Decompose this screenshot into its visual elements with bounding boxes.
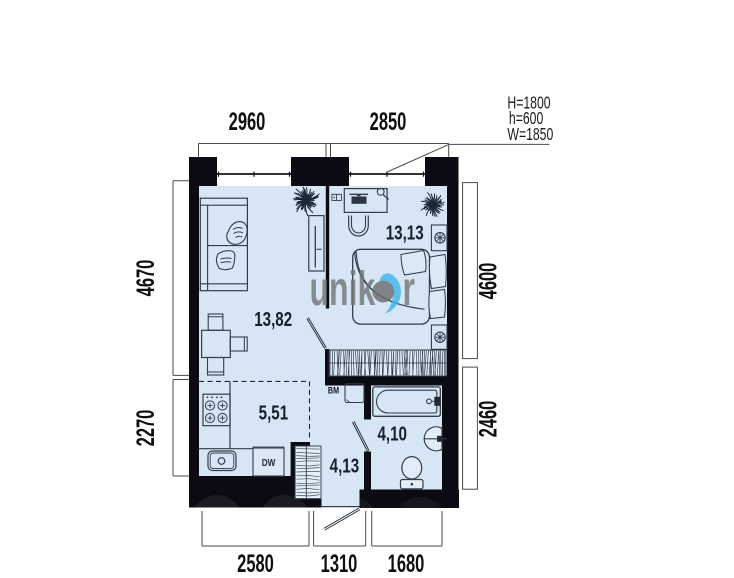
svg-text:4600: 4600: [475, 263, 502, 300]
svg-text:unik: unik: [310, 261, 376, 315]
svg-text:2580: 2580: [237, 551, 274, 578]
svg-text:2460: 2460: [475, 401, 502, 438]
svg-text:2960: 2960: [229, 109, 266, 136]
svg-text:r: r: [403, 261, 415, 315]
svg-text:ВМ: ВМ: [328, 386, 339, 396]
svg-text:2850: 2850: [370, 109, 407, 136]
svg-text:2270: 2270: [133, 410, 160, 447]
svg-text:4670: 4670: [133, 260, 160, 297]
svg-text:4,13: 4,13: [330, 454, 360, 477]
svg-text:13,13: 13,13: [386, 221, 424, 244]
svg-text:1680: 1680: [388, 551, 425, 578]
svg-text:4,10: 4,10: [377, 422, 407, 445]
svg-text:13,82: 13,82: [254, 308, 292, 331]
svg-text:1310: 1310: [321, 551, 358, 578]
svg-text:W=1850: W=1850: [507, 125, 553, 145]
svg-text:5,51: 5,51: [259, 401, 289, 424]
svg-text:DW: DW: [262, 456, 276, 468]
